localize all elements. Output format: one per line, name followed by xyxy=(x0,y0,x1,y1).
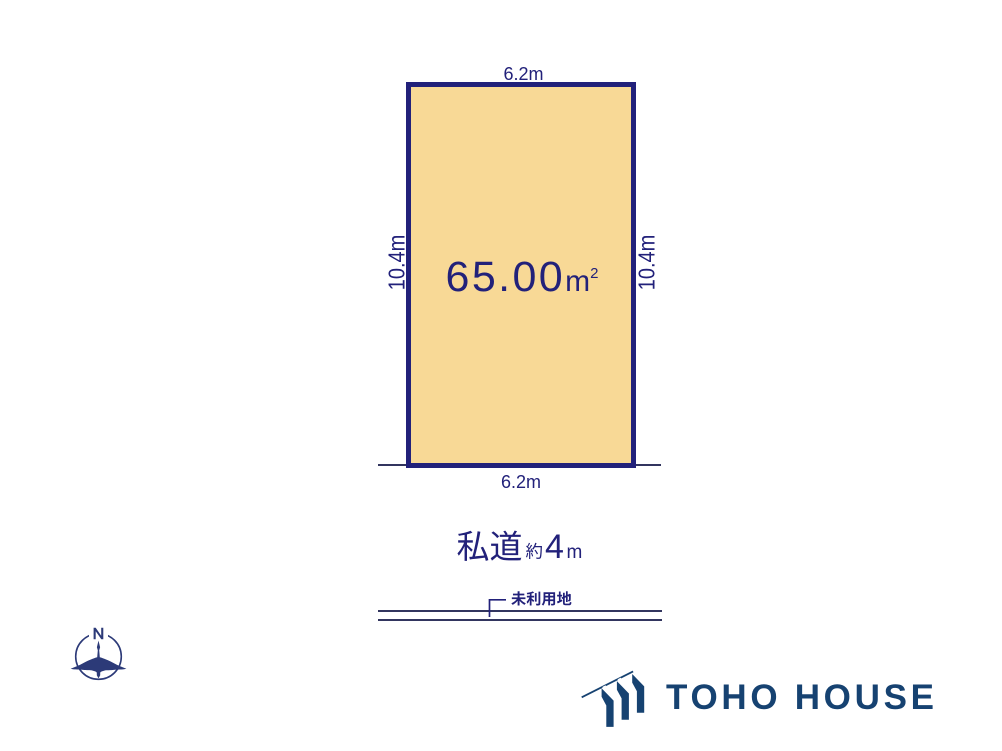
svg-text:m: m xyxy=(567,542,583,563)
svg-text:4: 4 xyxy=(545,528,564,565)
